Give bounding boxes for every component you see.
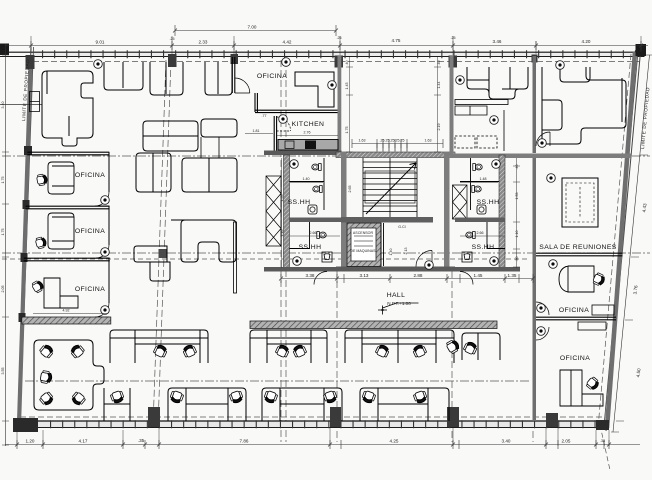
svg-text:4.50: 4.50 xyxy=(636,368,642,378)
svg-text:3.13: 3.13 xyxy=(360,273,369,278)
svg-text:1.81: 1.81 xyxy=(253,129,260,133)
svg-text:2.33: 2.33 xyxy=(199,40,208,45)
svg-text:HALL: HALL xyxy=(387,292,406,299)
svg-text:.77: .77 xyxy=(262,114,267,118)
svg-text:.40: .40 xyxy=(345,61,349,66)
svg-text:1.44: 1.44 xyxy=(437,82,441,89)
svg-text:4.20: 4.20 xyxy=(582,39,591,44)
svg-text:1.40: 1.40 xyxy=(389,249,393,256)
svg-text:.40: .40 xyxy=(515,165,519,170)
svg-text:2.65: 2.65 xyxy=(348,186,352,193)
svg-text:4.42: 4.42 xyxy=(283,40,292,45)
svg-text:.25: .25 xyxy=(451,36,456,40)
svg-text:1.45: 1.45 xyxy=(345,83,349,90)
svg-text:4.75: 4.75 xyxy=(392,38,401,43)
svg-text:KITCHEN: KITCHEN xyxy=(292,121,325,128)
svg-text:2.05: 2.05 xyxy=(562,439,571,444)
svg-text:4.43: 4.43 xyxy=(642,203,648,213)
svg-text:2.05: 2.05 xyxy=(1,286,5,293)
svg-text:G.CI: G.CI xyxy=(398,225,405,229)
svg-text:.35: .35 xyxy=(138,438,145,443)
svg-text:.33: .33 xyxy=(600,439,605,443)
svg-text:1.10: 1.10 xyxy=(515,231,519,238)
svg-text:9.01: 9.01 xyxy=(96,40,105,45)
svg-text:2.88: 2.88 xyxy=(414,273,423,278)
svg-text:1.63: 1.63 xyxy=(425,139,432,143)
svg-text:.25: .25 xyxy=(170,37,175,41)
svg-text:OFICINA: OFICINA xyxy=(75,286,105,293)
svg-text:2.13: 2.13 xyxy=(404,248,408,255)
svg-text:3.55: 3.55 xyxy=(1,368,5,375)
svg-text:3.40: 3.40 xyxy=(1,102,5,109)
svg-text:.40: .40 xyxy=(437,61,441,66)
svg-text:1.48: 1.48 xyxy=(480,177,487,181)
svg-text:3.40: 3.40 xyxy=(502,439,511,444)
svg-text:1.53: 1.53 xyxy=(515,193,519,200)
svg-text:SS.HH: SS.HH xyxy=(472,244,495,251)
svg-text:SS.HH: SS.HH xyxy=(477,199,500,206)
svg-text:DE MAQUINAS: DE MAQUINAS xyxy=(350,249,376,253)
svg-text:1.75: 1.75 xyxy=(345,127,349,134)
svg-text:7.86: 7.86 xyxy=(240,439,249,444)
svg-text:OFICINA: OFICINA xyxy=(560,355,590,362)
svg-text:ASCENSOR: ASCENSOR xyxy=(353,231,374,235)
svg-text:1.45: 1.45 xyxy=(474,273,483,278)
svg-text:3.38: 3.38 xyxy=(306,273,315,278)
svg-text:1.40: 1.40 xyxy=(303,177,310,181)
svg-text:OFICINA: OFICINA xyxy=(257,73,287,80)
svg-text:2.66: 2.66 xyxy=(310,231,317,235)
svg-text:OFICINA: OFICINA xyxy=(75,172,105,179)
svg-text:.50: .50 xyxy=(515,257,519,262)
svg-text:1.63: 1.63 xyxy=(359,139,366,143)
svg-text:1.75: 1.75 xyxy=(1,177,5,184)
svg-text:7.00: 7.00 xyxy=(248,25,257,30)
svg-text:3.76: 3.76 xyxy=(633,285,639,295)
svg-text:.25.25.25.25.25: .25.25.25.25.25 xyxy=(380,139,405,143)
svg-text:.25: .25 xyxy=(337,36,342,40)
svg-text:SS.HH: SS.HH xyxy=(299,244,322,251)
svg-text:2.66: 2.66 xyxy=(477,231,484,235)
svg-text:OFICINA: OFICINA xyxy=(75,228,105,235)
svg-text:2.76: 2.76 xyxy=(304,131,311,135)
svg-text:1.20: 1.20 xyxy=(26,439,35,444)
svg-text:4.92: 4.92 xyxy=(63,309,70,313)
svg-text:2.19: 2.19 xyxy=(437,124,441,131)
svg-text:OFICINA: OFICINA xyxy=(559,307,589,314)
svg-text:1.55: 1.55 xyxy=(280,195,284,202)
svg-text:1.35: 1.35 xyxy=(508,273,517,278)
svg-text:N.P.T.+1.00: N.P.T.+1.00 xyxy=(387,301,411,306)
svg-text:4.25: 4.25 xyxy=(390,439,399,444)
svg-text:4.17: 4.17 xyxy=(79,439,88,444)
svg-text:1.10: 1.10 xyxy=(280,230,284,237)
svg-text:3.46: 3.46 xyxy=(493,39,502,44)
svg-text:1.75: 1.75 xyxy=(1,229,5,236)
svg-text:SS.HH: SS.HH xyxy=(288,199,311,206)
svg-text:SALA DE REUNIONES: SALA DE REUNIONES xyxy=(539,244,617,251)
